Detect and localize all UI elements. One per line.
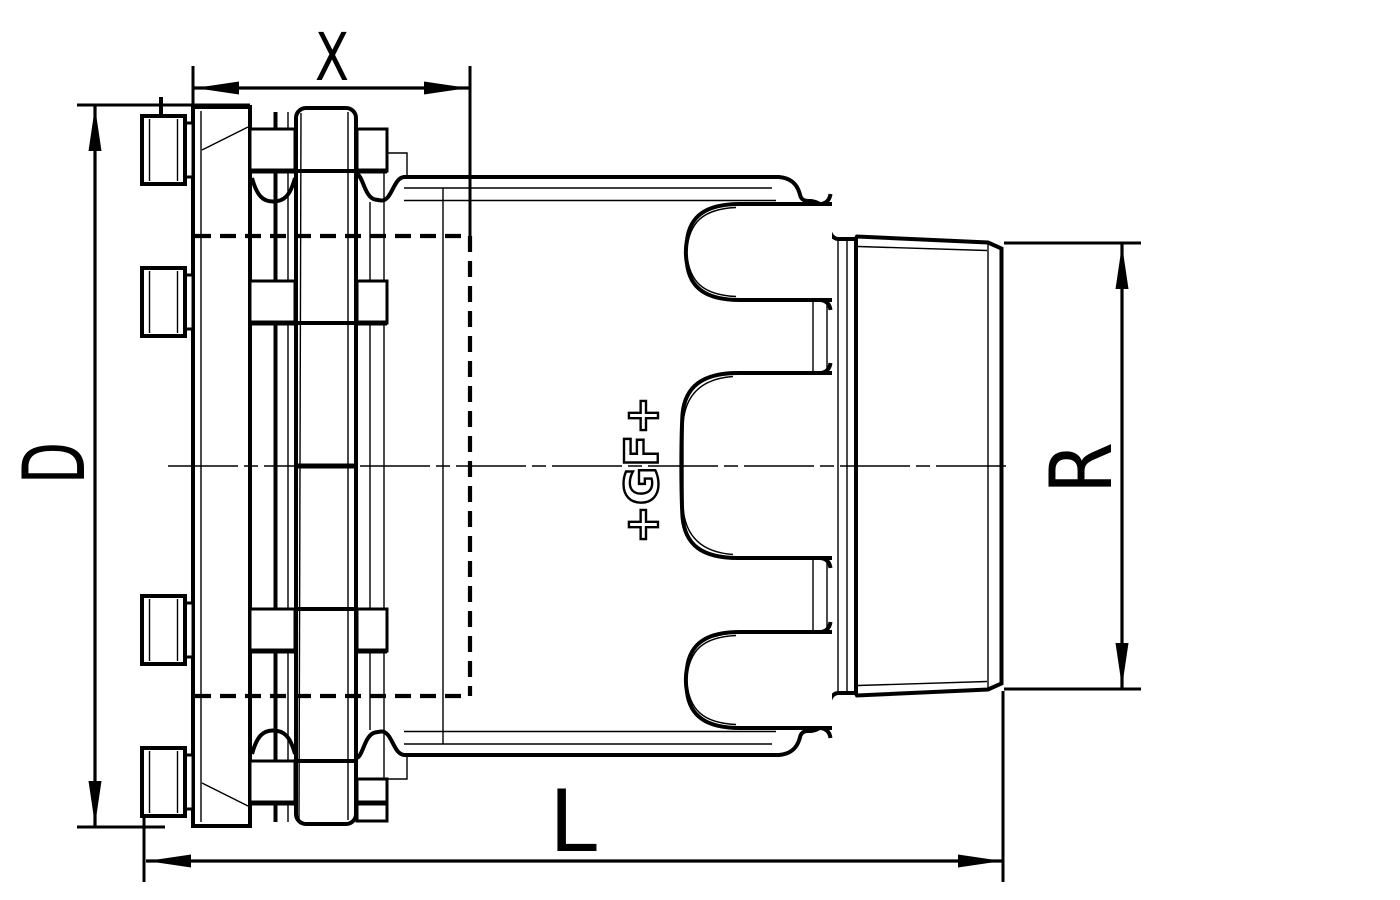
dimension-d-label: D xyxy=(5,442,105,484)
bolt-heads xyxy=(142,97,193,816)
bolt-head xyxy=(142,748,185,816)
bolt xyxy=(142,116,193,184)
bolt-head xyxy=(142,268,185,336)
bolt xyxy=(142,268,193,336)
arrow-right-icon xyxy=(958,855,1002,868)
dimension-r-label: R xyxy=(1032,442,1132,494)
bolt-spacer xyxy=(250,761,295,803)
sleeve-shelf xyxy=(387,153,407,176)
bolt-head xyxy=(142,596,185,664)
dimension-l-label: L xyxy=(549,772,597,872)
arrow-up-icon xyxy=(1116,245,1129,289)
bolt-head xyxy=(142,116,185,184)
bolt-spacer xyxy=(250,609,295,651)
flange-assembly xyxy=(142,97,387,826)
arrow-down-icon xyxy=(1116,643,1129,687)
bolt xyxy=(142,748,193,816)
arrow-right-icon xyxy=(424,82,468,95)
bolt-spacer xyxy=(250,281,295,323)
arrow-left-icon xyxy=(195,82,239,95)
dimension-r: R xyxy=(1004,243,1141,689)
bolt-tail xyxy=(357,779,387,821)
gap-contours xyxy=(252,112,295,822)
arrow-down-icon xyxy=(89,781,102,825)
gf-logo: +GF+ xyxy=(615,396,669,544)
bolt-tail xyxy=(357,609,387,651)
grip-tooth xyxy=(686,632,832,728)
bolt-spacer xyxy=(250,129,295,171)
grip-tooth xyxy=(686,204,832,300)
bolt-tail xyxy=(357,281,387,323)
arrow-left-icon xyxy=(147,855,191,868)
fitting-drawing: X D R L +GF+ xyxy=(0,0,1400,900)
technical-drawing-page: X D R L +GF+ xyxy=(0,0,1400,900)
arrow-up-icon xyxy=(89,107,102,151)
bolt-tail xyxy=(357,129,387,171)
dimension-x-label: X xyxy=(315,19,349,96)
sleeve-shelf xyxy=(387,756,407,779)
bolt xyxy=(142,596,193,664)
